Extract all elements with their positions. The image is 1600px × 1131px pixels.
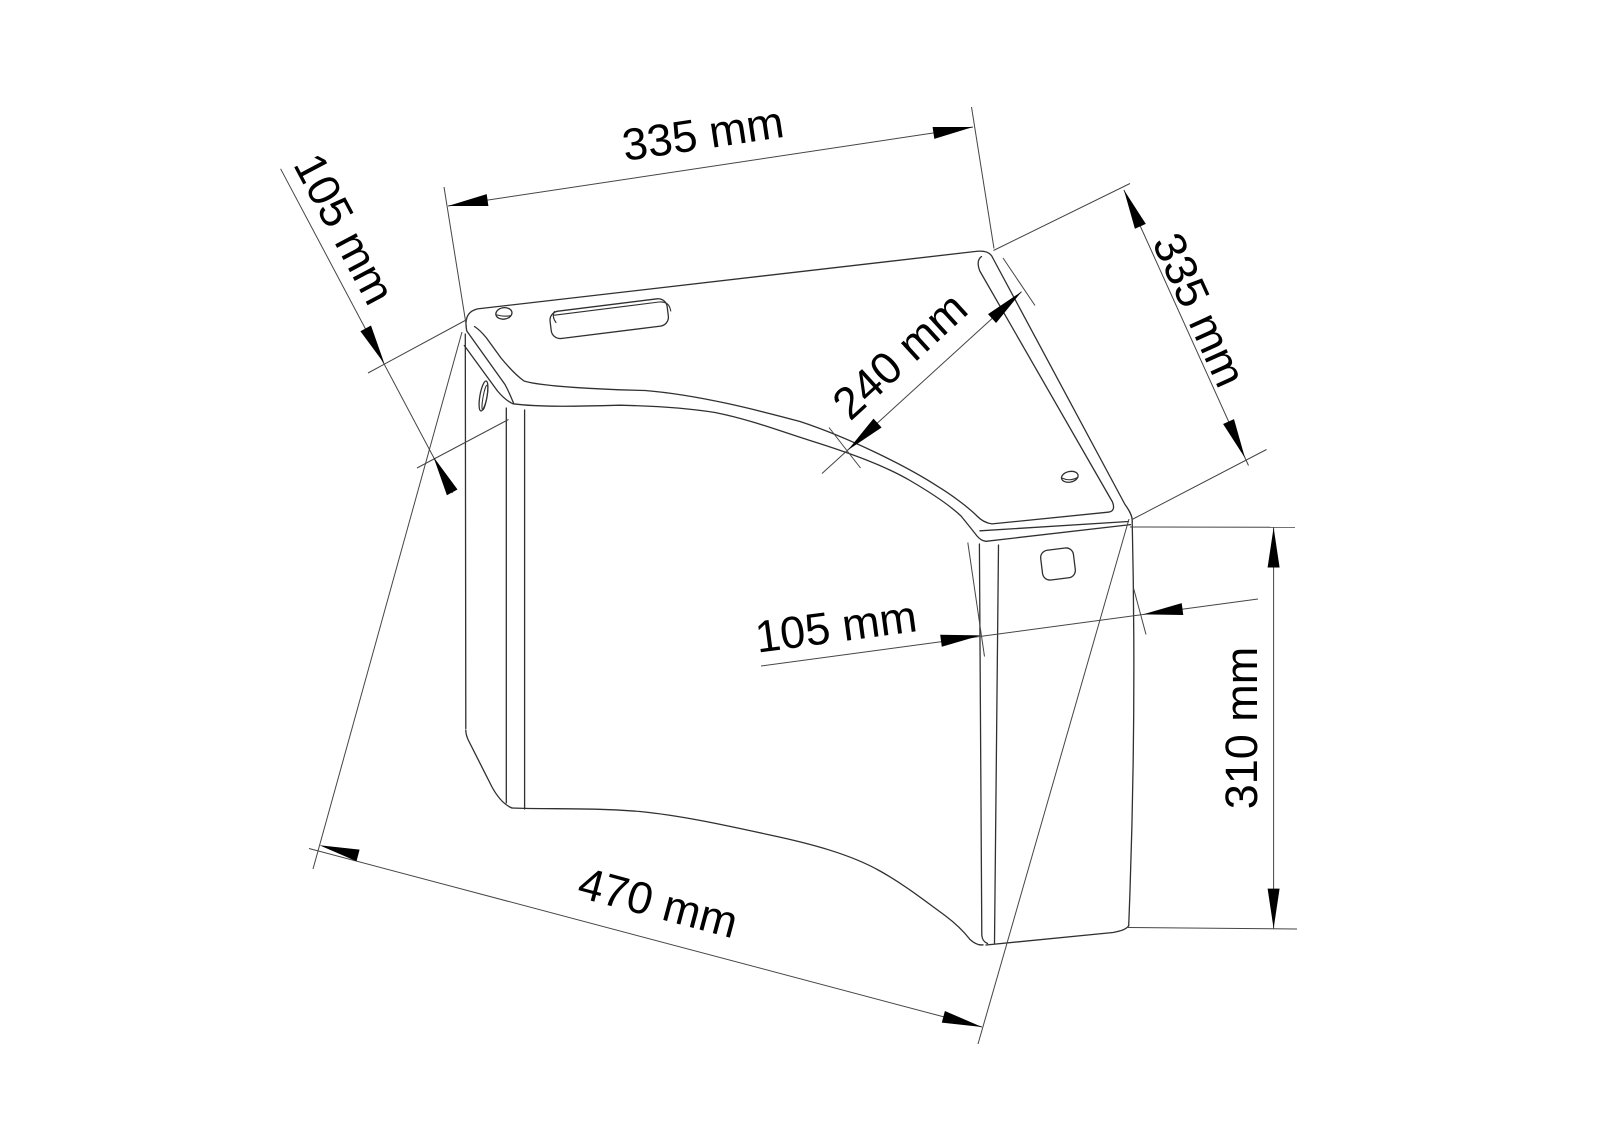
svg-text:310 mm: 310 mm [1216, 647, 1267, 810]
